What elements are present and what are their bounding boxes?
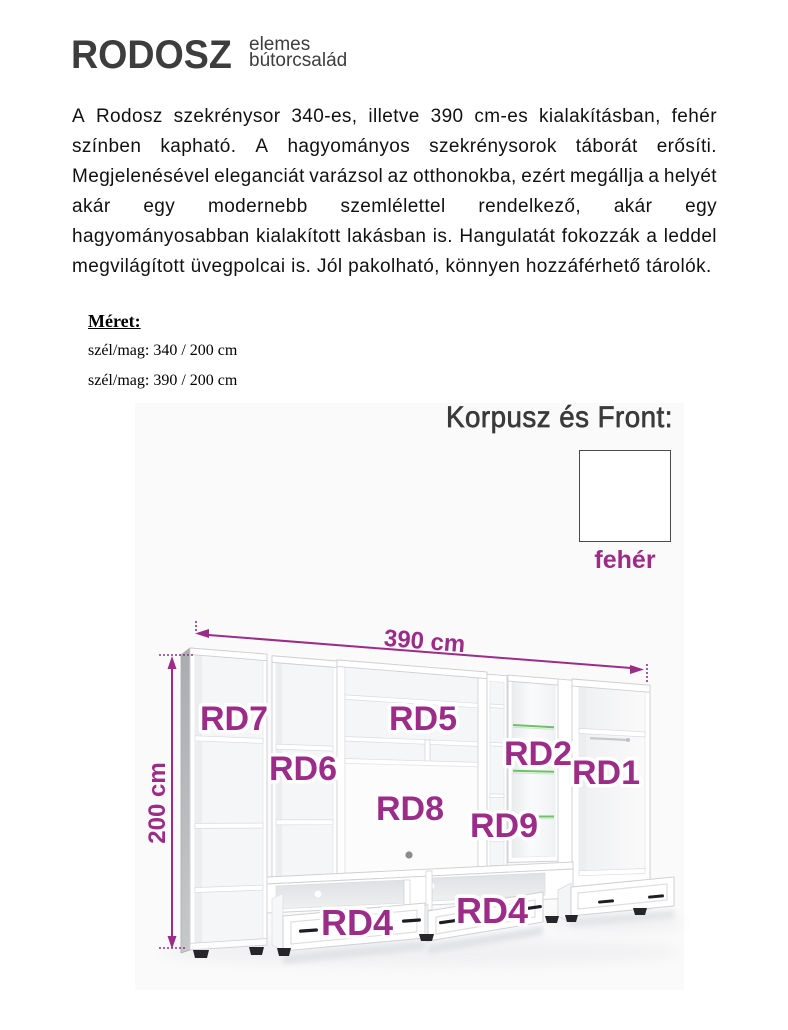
svg-text:RD2: RD2 — [504, 735, 572, 773]
svg-text:RD4: RD4 — [321, 902, 393, 943]
svg-text:RD1: RD1 — [572, 754, 640, 792]
svg-text:200 cm: 200 cm — [144, 762, 171, 843]
svg-text:RD6: RD6 — [269, 750, 337, 788]
svg-text:RD8: RD8 — [376, 790, 444, 828]
svg-text:RD7: RD7 — [200, 700, 268, 738]
svg-text:RD4: RD4 — [456, 890, 528, 931]
svg-text:RD9: RD9 — [470, 807, 538, 845]
svg-text:RD5: RD5 — [389, 700, 457, 738]
